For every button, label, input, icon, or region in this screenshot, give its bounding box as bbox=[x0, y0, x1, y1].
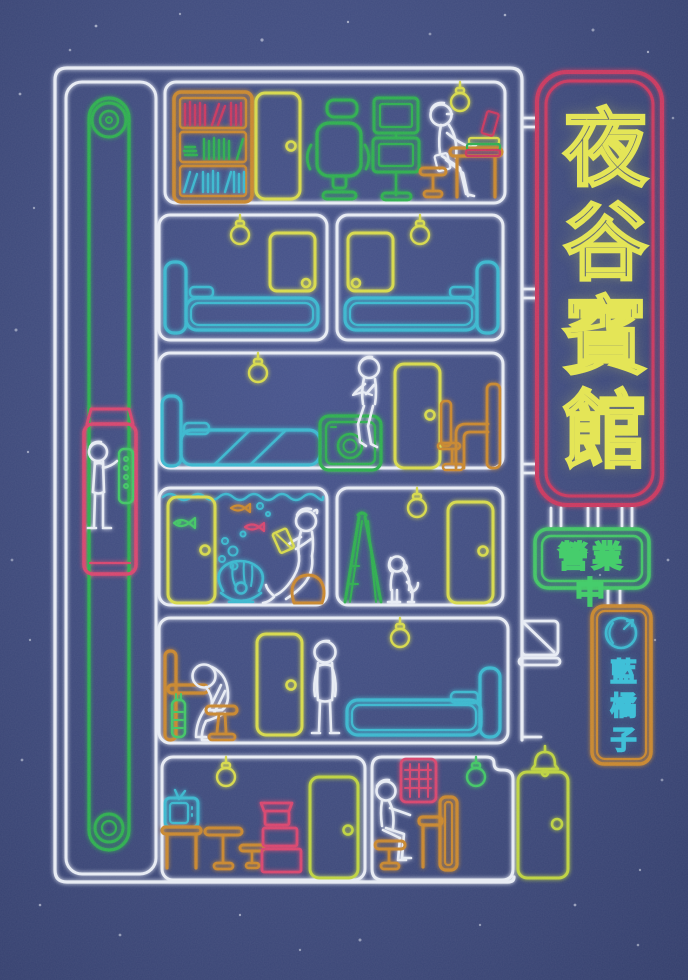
author-sign bbox=[592, 606, 651, 764]
bed bbox=[162, 396, 320, 466]
door bbox=[448, 502, 493, 603]
dual-monitors bbox=[373, 98, 419, 200]
elevator-pulley-top bbox=[92, 103, 126, 137]
room-box bbox=[337, 488, 503, 605]
pedestal-table bbox=[205, 828, 242, 869]
orange-fruit-icon bbox=[606, 618, 636, 648]
stepladder bbox=[345, 513, 381, 602]
reception-counter bbox=[419, 797, 457, 870]
elevator bbox=[66, 82, 156, 874]
bed bbox=[347, 668, 500, 737]
mail-chute bbox=[519, 621, 560, 665]
door bbox=[168, 497, 215, 603]
star-speckles bbox=[11, 13, 675, 951]
floor-aquarium-ladder bbox=[159, 488, 503, 605]
desk-chair bbox=[438, 401, 463, 470]
bookshelf bbox=[174, 92, 252, 202]
entrance bbox=[518, 621, 568, 878]
television bbox=[165, 790, 198, 827]
light-bulb-green bbox=[467, 757, 485, 786]
light-bulb bbox=[231, 215, 249, 244]
fish-green bbox=[174, 518, 195, 528]
door bbox=[256, 93, 300, 199]
elevator-passenger bbox=[88, 442, 117, 528]
tv-stand bbox=[162, 827, 201, 868]
books-green bbox=[184, 138, 243, 159]
floor-lobby bbox=[162, 757, 513, 880]
door bbox=[310, 777, 358, 878]
fish-red bbox=[245, 523, 264, 531]
light-bulb bbox=[408, 488, 426, 517]
study-stool bbox=[420, 168, 446, 197]
neon-illustration bbox=[0, 0, 688, 980]
lobby-stool bbox=[240, 845, 264, 868]
person-standing bbox=[312, 641, 339, 733]
entrance-door bbox=[518, 772, 568, 878]
floor-study bbox=[165, 82, 505, 203]
elevator-pulley-bottom bbox=[95, 814, 123, 842]
hotel-sign bbox=[537, 72, 662, 505]
poster: 夜谷賓館 營業中 藍橘子 bbox=[0, 0, 688, 980]
door bbox=[257, 634, 302, 735]
bed bbox=[165, 262, 318, 333]
door bbox=[270, 233, 315, 291]
bubbles bbox=[219, 503, 270, 570]
gaming-chair bbox=[307, 100, 369, 199]
person-slumped bbox=[193, 665, 229, 741]
giant-clam bbox=[219, 561, 263, 602]
elevator-button-panel bbox=[119, 449, 133, 503]
bed bbox=[345, 262, 498, 333]
elevator-enclosure bbox=[66, 82, 156, 874]
green-bottle bbox=[172, 694, 185, 737]
light-bulb bbox=[217, 757, 235, 786]
pearl bbox=[236, 583, 247, 594]
book-stack bbox=[466, 111, 500, 156]
floor-laundry-bedroom bbox=[159, 353, 503, 470]
dog bbox=[388, 557, 418, 603]
fish-orange bbox=[231, 504, 250, 512]
light-bulb bbox=[451, 82, 469, 111]
tall-desk bbox=[456, 384, 500, 468]
books-red bbox=[185, 102, 241, 125]
signs bbox=[524, 72, 662, 764]
books-cyan bbox=[184, 171, 244, 192]
key-rack bbox=[401, 759, 436, 802]
stacked-boxes bbox=[261, 803, 301, 872]
room-box bbox=[162, 757, 365, 880]
door bbox=[395, 364, 440, 468]
light-bulb bbox=[411, 215, 429, 244]
door bbox=[348, 233, 393, 291]
open-sign bbox=[535, 529, 649, 588]
yellow-book bbox=[272, 528, 294, 553]
light-bulb bbox=[249, 353, 267, 382]
floor-twin-bedrooms bbox=[159, 215, 503, 340]
mermaid-figure bbox=[263, 509, 317, 603]
light-bulb bbox=[391, 618, 409, 647]
floor-hallway-bedroom bbox=[159, 618, 508, 743]
